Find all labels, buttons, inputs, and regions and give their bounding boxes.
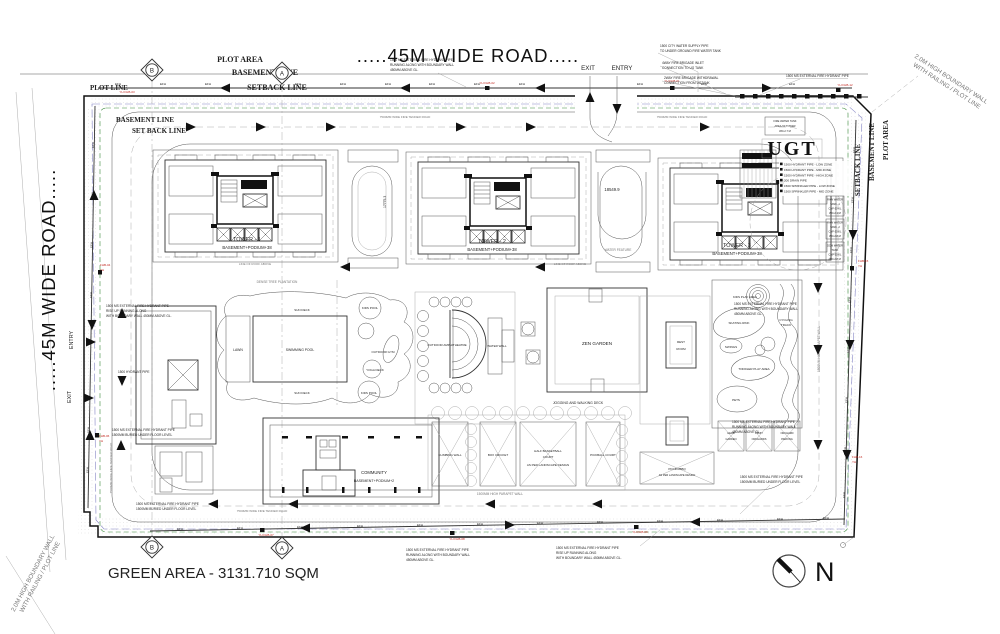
svg-text:EFH: EFH	[849, 247, 853, 253]
svg-text:1500 MS EXTERNAL FIRE HYDRANT: 1500 MS EXTERNAL FIRE HYDRANT PIPE	[136, 502, 199, 506]
svg-text:EFH: EFH	[637, 82, 643, 86]
svg-text:EFH: EFH	[237, 526, 243, 530]
community-label: COMMUNITY	[361, 470, 387, 475]
tank-table-line: RAW WATER	[827, 221, 843, 225]
svg-text:1500MM BURIED UNDER FLOOR LEVE: 1500MM BURIED UNDER FLOOR LEVEL	[112, 433, 172, 437]
svg-text:EFH: EFH	[86, 467, 90, 473]
tower-2-label: TOWER - 2	[478, 239, 506, 245]
svg-text:EFH: EFH	[477, 522, 483, 526]
fire-water-tank-line: WD-2.7 M	[779, 129, 791, 133]
kids-pool-label: KIDS POOL	[362, 306, 379, 310]
svg-text:EFH: EFH	[86, 427, 90, 433]
fruit-orchards-label: ORCHARDS	[752, 437, 767, 441]
svg-text:1500 MS EXTERNAL FIRE HYDRANT: 1500 MS EXTERNAL FIRE HYDRANT PIPE	[106, 304, 169, 308]
svg-text:RUNNING ALONG WITH BOUNDARY WA: RUNNING ALONG WITH BOUNDARY WALL	[406, 553, 470, 557]
svg-text:YH: YH	[858, 264, 862, 268]
svg-text:1500 MS EXTERNAL FIRE HYDRANT: 1500 MS EXTERNAL FIRE HYDRANT PIPE	[732, 420, 795, 424]
svg-text:FHB-15: FHB-15	[858, 259, 869, 263]
cycling-label: CYCLING	[779, 318, 793, 322]
lawn-label: LAWN	[233, 348, 243, 352]
svg-text:1500 CITY WATER SUPPLY PIPE: 1500 CITY WATER SUPPLY PIPE	[660, 44, 709, 48]
green-area-label: GREEN AREA - 3131.710 SQM	[108, 565, 319, 582]
sun-deck-label: SUN DECK	[294, 391, 310, 395]
svg-text:EFH: EFH	[848, 297, 852, 303]
svg-text:450MM ABOVE GL.: 450MM ABOVE GL.	[406, 558, 434, 562]
svg-text:7500MM WIDE FIRE TENDER ROAD: 7500MM WIDE FIRE TENDER ROAD	[380, 115, 431, 119]
svg-text:FHB-04: FHB-04	[100, 263, 111, 267]
toddler-label: TODDLER PLAY AREA	[738, 367, 769, 371]
plot-area-label: PLOT AREA	[217, 55, 263, 64]
tower-1-label: TOWER - 1	[233, 237, 261, 243]
svg-text:EFH: EFH	[823, 516, 829, 520]
tower-3-label: TOWER - 3	[723, 243, 751, 249]
svg-text:EFH: EFH	[717, 518, 723, 522]
note-hydrant-mid: 1500 HYDRANT PIPE	[118, 370, 149, 374]
herb-garden-label: GARDEN	[725, 437, 736, 441]
note-buried-bottom-left: 1500 MS EXTERNAL FIRE HYDRANT PIPE 1500M…	[136, 502, 199, 511]
ugt-pipe-item: 1500 HYDRANT PIPE - MID ZONE	[784, 168, 831, 172]
tank-table-line: WD-2.8 M	[829, 257, 841, 261]
north-label: N	[815, 557, 835, 587]
basketball-label: AS PER LANDSCAPE DESIGN	[527, 463, 569, 467]
site-plan-drawing: TOWER - 1 BASEMENT+PODIUM+38 TOWER - 2 B…	[0, 0, 1000, 634]
svg-text:EFH: EFH	[340, 82, 346, 86]
water-wall-label: WATER WALL	[487, 344, 507, 348]
svg-text:EFH: EFH	[417, 523, 423, 527]
svg-text:EFH: EFH	[537, 521, 543, 525]
tower-1-sublabel: BASEMENT+PODIUM+38	[222, 245, 272, 250]
ugt-pipe-item: 200 DRAIN PIPE	[784, 179, 807, 183]
note-buried-left: 1500 MS EXTERNAL FIRE HYDRANT PIPE 1500M…	[112, 428, 175, 437]
jogging-deck-label: JOGGING AND WALKING DECK	[553, 401, 604, 405]
dense-tree-label: DENSE TREE PLANTATION	[257, 280, 298, 284]
basketball-label: HALF BASKETBALL	[534, 449, 562, 453]
amphitheatre-label: OUTDOOR AMPHITHEATRE	[427, 343, 466, 347]
line-of-roof-label: LINE OF ROOF ABOVE	[239, 262, 271, 266]
entry-label: ENTRY	[612, 65, 633, 72]
tank-table-line: CAP-50 KL	[829, 253, 843, 257]
ugt-pipe-item: 1500 SPRINKLER PIPE - LOW ZONE	[784, 184, 835, 188]
tank-table-line: TANK -1	[830, 202, 840, 206]
box-cricket-label: BOX CRICKET	[488, 453, 509, 457]
svg-text:EFH: EFH	[846, 347, 850, 353]
svg-text:EFH: EFH	[177, 527, 183, 531]
svg-text:EFH: EFH	[597, 520, 603, 524]
basement-line-inner-label: BASEMENT LINE	[116, 116, 174, 124]
setback-line-right-label: SETBACK LINE	[854, 144, 862, 197]
orchard-parking-label: PARKING	[781, 437, 792, 441]
svg-text:EFH: EFH	[91, 192, 95, 198]
svg-text:EFH: EFH	[385, 82, 391, 86]
tank-table-line: WD-2.8 M	[829, 234, 841, 238]
svg-text:1500MM BURIED UNDER FLOOR LEVE: 1500MM BURIED UNDER FLOOR LEVEL	[740, 480, 800, 484]
svg-text:YH FHB-08: YH FHB-08	[449, 537, 465, 541]
svg-text:EFH: EFH	[777, 517, 783, 521]
svg-text:EFH: EFH	[160, 82, 166, 86]
tank-table-line: TANK	[832, 248, 839, 252]
fire-water-tank-line: AREA-50 TOWER	[774, 124, 795, 128]
tank-table-line: DOM WATER	[827, 244, 843, 248]
exit-label-left: EXIT	[67, 390, 73, 403]
svg-text:EFH: EFH	[91, 142, 95, 148]
dimension-17775: 17775.3	[383, 196, 387, 208]
svg-text:EFH: EFH	[357, 524, 363, 528]
svg-text:FHB-06: FHB-06	[99, 434, 110, 438]
kids-pool-label: KIDS POOL	[361, 391, 378, 395]
road-title-top: .....45M WIDE ROAD.....	[357, 45, 579, 66]
svg-text:FHB-16: FHB-16	[852, 455, 863, 459]
svg-text:EFH: EFH	[845, 397, 849, 403]
svg-text:YH: YH	[100, 268, 104, 272]
swimming-pool-label: SWIMMING POOL	[286, 348, 315, 352]
svg-text:EFH: EFH	[205, 82, 211, 86]
svg-text:B: B	[150, 545, 154, 552]
plot-line-label: PLOT LINE	[90, 84, 128, 92]
svg-text:1500 MS EXTERNAL FIRE HYDRANT: 1500 MS EXTERNAL FIRE HYDRANT PIPE	[734, 302, 797, 306]
sun-deck-label: SUN DECK	[294, 308, 310, 312]
set-back-line-inner-label: SET BACK LINE	[132, 127, 186, 135]
ugt-pipe-item: 1500 HYDRANT PIPE - HIGH ZONE	[784, 173, 833, 177]
svg-text:450MM ABOVE GL.: 450MM ABOVE GL.	[734, 312, 762, 316]
svg-text:EFH: EFH	[297, 525, 303, 529]
rest-room-label: ROOM	[676, 347, 686, 351]
ugt-pipe-item: 1500 SPRINKLER PIPE - MID ZONE	[784, 190, 834, 194]
community-sublabel: BASEMENT+PODIUM+2	[354, 479, 394, 483]
tower-2-sublabel: BASEMENT+PODIUM+38	[467, 247, 517, 252]
svg-text:EFH: EFH	[90, 242, 94, 248]
rest-room-label: REST	[677, 340, 685, 344]
ugt-label: UGT	[767, 138, 816, 160]
site-plan-screenshot: TOWER - 1 BASEMENT+PODIUM+38 TOWER - 2 B…	[0, 0, 1000, 634]
pets-label: PETS	[732, 398, 740, 402]
svg-text:YH FHB-02: YH FHB-02	[479, 81, 495, 85]
svg-text:7500MM WIDE FIRE TENDER ROAD: 7500MM WIDE FIRE TENDER ROAD	[237, 509, 288, 513]
pickball-label: PICKBALL COURT	[590, 453, 616, 457]
exit-label: EXIT	[581, 65, 595, 72]
picnic-label: PICNIC/BBQ	[668, 467, 686, 471]
svg-text:YH FHB-12: YH FHB-12	[837, 83, 853, 87]
tank-table-line: RAW WATER	[827, 198, 843, 202]
svg-text:EFH: EFH	[789, 82, 795, 86]
svg-text:RUNNING ALONG WITH BOUNDARY WA: RUNNING ALONG WITH BOUNDARY WALL	[732, 425, 796, 429]
svg-text:EFH: EFH	[429, 82, 435, 86]
tank-table-line: TANK -2	[830, 225, 840, 229]
setback-line-label: SETBACK LINE	[247, 83, 307, 92]
svg-text:WITH BOUNDARY WALL 450MM ABOVE: WITH BOUNDARY WALL 450MM ABOVE GL.	[556, 556, 622, 560]
svg-text:EFH: EFH	[657, 519, 663, 523]
svg-text:1500MM BURIED UNDER FLOOR LEVE: 1500MM BURIED UNDER FLOOR LEVEL	[136, 507, 196, 511]
water-feature-label: WATER FEATURE	[605, 248, 632, 252]
cycling-label: TRACK	[781, 323, 791, 327]
line-of-roof-label: LINE OF ROOF ABOVE	[554, 262, 586, 266]
road-title-left: .....45M WIDE ROAD.....	[38, 169, 59, 391]
svg-text:EFH: EFH	[519, 82, 525, 86]
skating-label: SKATING RINK	[729, 321, 750, 325]
parapet-wall-label: 1500MM HIGH PARAPET WALL	[477, 492, 523, 496]
basketball-label: COURT	[543, 455, 554, 459]
tank-table-line: CAP-50 KL	[829, 230, 843, 234]
basement-line-right-label: BASEMENT LINE	[868, 123, 876, 181]
svg-text:RUNNING ALONG WITH BOUNDARY WA: RUNNING ALONG WITH BOUNDARY WALL	[734, 307, 798, 311]
svg-text:1500 MS EXTERNAL FIRE HYDRANT: 1500 MS EXTERNAL FIRE HYDRANT PIPE	[740, 475, 803, 479]
svg-text:1500 MS EXTERNAL FIRE HYDRANT: 1500 MS EXTERNAL FIRE HYDRANT PIPE	[786, 74, 849, 78]
svg-text:TO UNDER GROUND FIRE WATER TAN: TO UNDER GROUND FIRE WATER TANK	[660, 49, 722, 53]
svg-text:2WAY FIRE BRIGADE WITHDRAWAL: 2WAY FIRE BRIGADE WITHDRAWAL	[664, 76, 719, 80]
svg-text:YH FHB-09: YH FHB-09	[632, 530, 648, 534]
svg-text:1500 MS EXTERNAL FIRE HYDRANT: 1500 MS EXTERNAL FIRE HYDRANT PIPE	[556, 546, 619, 550]
svg-text:450MM ABOVE GL.: 450MM ABOVE GL.	[390, 68, 418, 72]
kids-play-label: KIDS PLAY AREA	[733, 295, 757, 299]
fire-water-tank-line: FIRE WATER TANK	[773, 119, 796, 123]
zen-garden-label: ZEN GARDEN	[582, 341, 612, 346]
outdoor-gym-label: OUTDOOR GYM	[372, 350, 396, 354]
svg-text:7500MM WIDE FIRE TENDER ROAD: 7500MM WIDE FIRE TENDER ROAD	[109, 442, 113, 493]
svg-text:EFH: EFH	[89, 292, 93, 298]
svg-text:1500 MS EXTERNAL FIRE HYDRANT: 1500 MS EXTERNAL FIRE HYDRANT PIPE	[112, 428, 175, 432]
svg-text:RISE UP RUNNING ALONG: RISE UP RUNNING ALONG	[106, 309, 147, 313]
svg-text:RISE UP RUNNING ALONG: RISE UP RUNNING ALONG	[556, 551, 597, 555]
svg-text:YH FHB-07: YH FHB-07	[258, 533, 274, 537]
svg-text:450MM ABOVE GL.: 450MM ABOVE GL.	[732, 430, 760, 434]
tank-table-line: WD-2.1 M	[829, 211, 841, 215]
svg-text:YH: YH	[99, 439, 103, 443]
entry-label-left: ENTRY	[69, 331, 75, 350]
dimension-18549: 18549.9	[604, 187, 620, 192]
picnic-label: AS PER LANDSCAPE DESIGN	[659, 473, 696, 477]
tank-table-line: CAP-50 KL	[829, 207, 843, 211]
svg-text:B: B	[150, 68, 154, 75]
plot-area-right-label: PLOT AREA	[882, 120, 890, 160]
svg-text:7500MM WIDE FIRE TENDER ROAD: 7500MM WIDE FIRE TENDER ROAD	[657, 115, 708, 119]
svg-text:EFH: EFH	[842, 492, 846, 498]
swings-label: SWINGS	[725, 345, 737, 349]
svg-text:YH: YH	[852, 460, 856, 464]
svg-text:4WAY FIRE BRIGADE INLET: 4WAY FIRE BRIGADE INLET	[662, 61, 704, 65]
yoga-deck-label: YOGA DECK	[366, 368, 384, 372]
svg-text:EFH: EFH	[851, 197, 855, 203]
climbing-wall-label: CLIMBING WALL	[438, 453, 462, 457]
orchard-parking-label: ORCHARD	[780, 431, 793, 435]
svg-text:WITH BOUNDARY WALL 450MM ABOVE: WITH BOUNDARY WALL 450MM ABOVE GL.	[106, 314, 172, 318]
svg-text:1500 MS EXTERNAL FIRE HYDRANT: 1500 MS EXTERNAL FIRE HYDRANT PIPE	[406, 548, 469, 552]
tower-3-sublabel: BASEMENT+PODIUM+38	[712, 251, 762, 256]
ugt-pipe-item: 1500 HYDRANT PIPE - LOW ZONE	[784, 163, 832, 167]
